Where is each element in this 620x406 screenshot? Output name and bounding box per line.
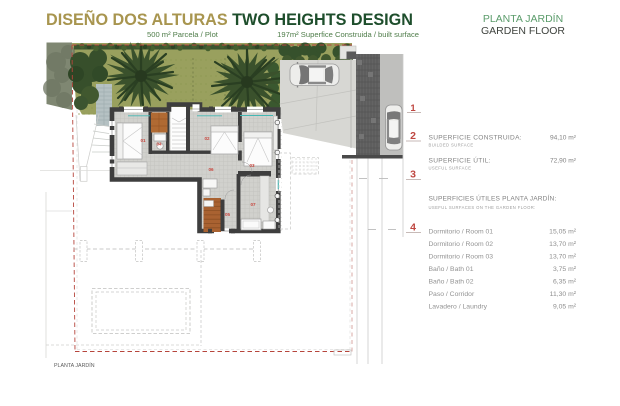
svg-text:07: 07 [250, 202, 256, 207]
svg-text:02: 02 [204, 136, 210, 141]
svg-text:Baño / Bath 02: Baño / Bath 02 [429, 279, 474, 286]
svg-text:15,05 m²: 15,05 m² [549, 229, 577, 236]
svg-text:03: 03 [249, 163, 255, 168]
svg-text:USEFUL SURFACE: USEFUL SURFACE [429, 166, 472, 171]
svg-text:01: 01 [140, 138, 146, 143]
svg-text:BUILDED SURFACE: BUILDED SURFACE [429, 143, 474, 148]
svg-text:2: 2 [410, 130, 416, 142]
svg-text:3: 3 [410, 169, 416, 181]
svg-text:Dormitorio / Room 03: Dormitorio / Room 03 [429, 254, 494, 261]
svg-text:PLANTA JARDÍN: PLANTA JARDÍN [483, 12, 563, 25]
svg-text:PLANTA JARDÍN: PLANTA JARDÍN [54, 362, 95, 369]
svg-text:11,30 m²: 11,30 m² [550, 291, 577, 298]
svg-text:500 m² Parcela / Plot: 500 m² Parcela / Plot [147, 30, 219, 39]
svg-text:SUPERFICIES ÚTILES PLANTA JARD: SUPERFICIES ÚTILES PLANTA JARDÍN: [429, 194, 557, 203]
svg-text:3,75 m²: 3,75 m² [553, 266, 577, 273]
svg-text:4: 4 [410, 222, 416, 234]
svg-text:06: 06 [208, 167, 214, 172]
svg-text:04: 04 [156, 142, 162, 147]
svg-text:13,70 m²: 13,70 m² [549, 241, 577, 248]
svg-text:SUPERFICIE ÚTIL:: SUPERFICIE ÚTIL: [429, 156, 491, 165]
svg-text:197m² Superfice Construida / b: 197m² Superfice Construida / built surfa… [277, 30, 419, 39]
svg-text:94,10 m²: 94,10 m² [550, 135, 577, 142]
svg-text:Paso / Corridor: Paso / Corridor [429, 291, 475, 298]
svg-text:DISEÑO DOS ALTURAS TWO HEIGHTS: DISEÑO DOS ALTURAS TWO HEIGHTS DESIGN [46, 9, 413, 29]
svg-text:Lavadero / Laundry: Lavadero / Laundry [429, 304, 488, 311]
svg-text:9,05 m²: 9,05 m² [553, 304, 577, 311]
svg-text:Baño / Bath 01: Baño / Bath 01 [429, 266, 474, 273]
svg-text:Dormitorio / Room 01: Dormitorio / Room 01 [429, 229, 494, 236]
svg-text:Dormitorio / Room 02: Dormitorio / Room 02 [429, 241, 494, 248]
svg-text:13,70 m²: 13,70 m² [549, 254, 577, 261]
svg-text:USEFUL SURFACES ON THE GARDEN: USEFUL SURFACES ON THE GARDEN FLOOR: [429, 205, 536, 210]
svg-text:SUPERFICIE CONSTRUIDA:: SUPERFICIE CONSTRUIDA: [429, 135, 522, 142]
svg-text:72,90 m²: 72,90 m² [550, 158, 577, 165]
svg-text:6,35 m²: 6,35 m² [553, 279, 577, 286]
svg-text:05: 05 [225, 212, 231, 217]
svg-text:GARDEN FLOOR: GARDEN FLOOR [481, 25, 565, 37]
